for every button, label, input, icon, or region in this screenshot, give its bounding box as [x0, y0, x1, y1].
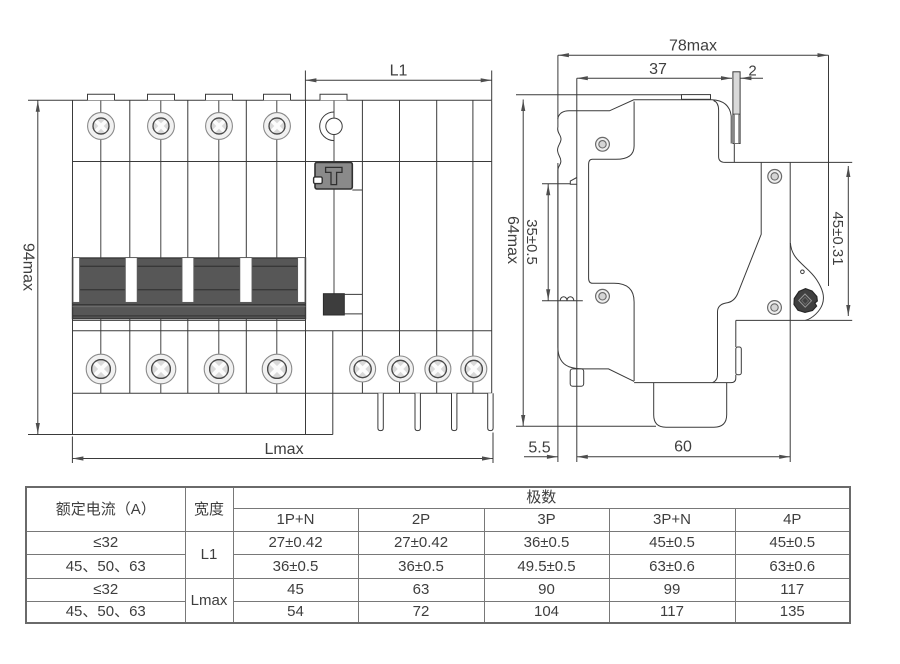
svg-text:64max: 64max: [504, 216, 521, 264]
svg-text:94max: 94max: [20, 243, 37, 291]
svg-text:78max: 78max: [669, 38, 717, 55]
svg-text:37: 37: [649, 61, 667, 78]
svg-text:5.5: 5.5: [528, 440, 550, 457]
svg-text:45±0.31: 45±0.31: [829, 211, 846, 265]
svg-text:2: 2: [748, 63, 756, 80]
svg-text:L1: L1: [390, 63, 408, 80]
svg-text:Lmax: Lmax: [264, 441, 303, 458]
svg-text:60: 60: [674, 439, 692, 456]
svg-text:35±0.5: 35±0.5: [523, 219, 540, 265]
